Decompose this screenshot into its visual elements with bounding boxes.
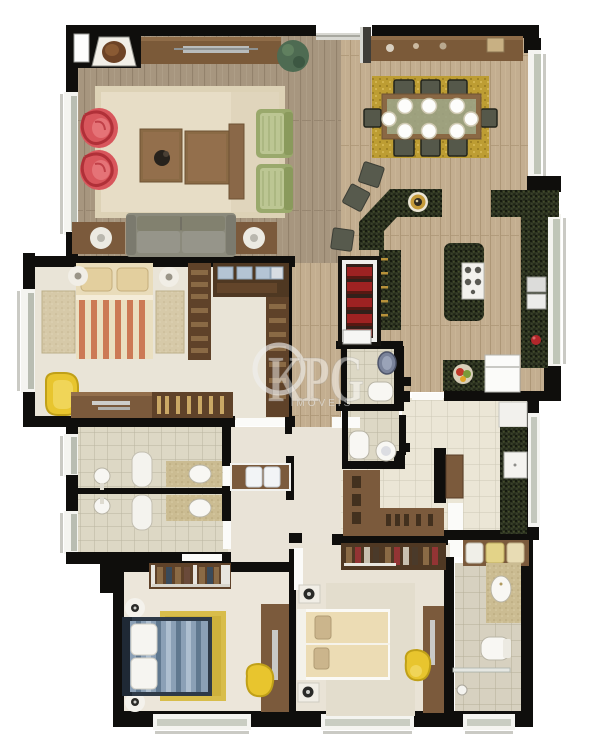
svg-text:IMÓVEIS: IMÓVEIS: [291, 396, 354, 409]
